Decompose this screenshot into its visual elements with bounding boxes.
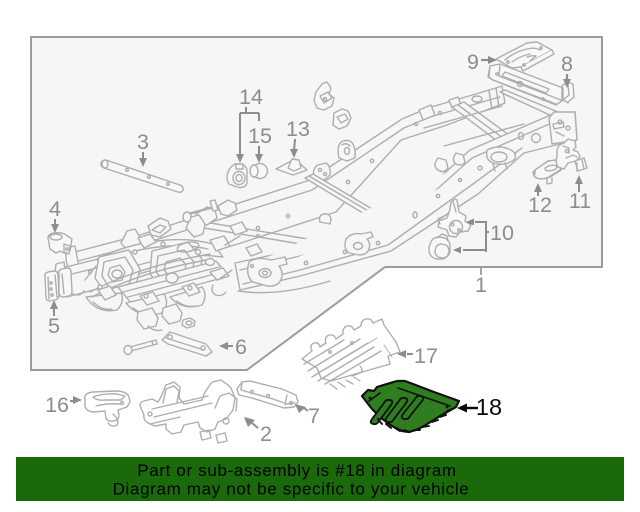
svg-text:5: 5 — [48, 314, 60, 338]
svg-text:14: 14 — [239, 85, 263, 109]
svg-text:Diagram may not be specific to: Diagram may not be specific to your vehi… — [113, 480, 470, 499]
svg-text:3: 3 — [137, 130, 149, 154]
svg-text:11: 11 — [569, 189, 591, 213]
svg-text:8: 8 — [561, 52, 573, 76]
svg-text:10: 10 — [490, 221, 514, 245]
svg-text:12: 12 — [528, 193, 552, 217]
svg-text:2: 2 — [260, 422, 272, 446]
svg-text:6: 6 — [235, 335, 247, 359]
svg-text:1: 1 — [475, 273, 487, 297]
svg-text:7: 7 — [308, 404, 320, 428]
svg-text:17: 17 — [414, 344, 438, 368]
svg-text:9: 9 — [467, 50, 479, 74]
svg-text:4: 4 — [49, 197, 61, 221]
svg-text:16: 16 — [45, 393, 69, 417]
svg-text:Part or sub-assembly is #18 in: Part or sub-assembly is #18 in diagram — [137, 461, 457, 480]
svg-text:18: 18 — [476, 394, 502, 420]
svg-text:15: 15 — [248, 124, 272, 148]
svg-text:13: 13 — [286, 117, 310, 141]
